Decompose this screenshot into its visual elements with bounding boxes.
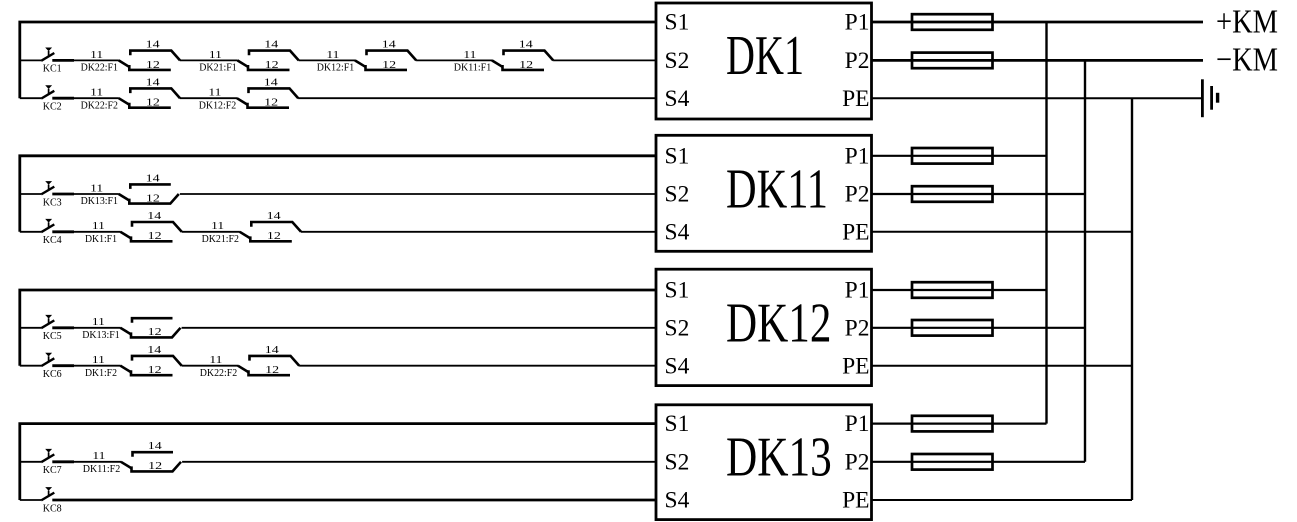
svg-text:S4: S4 bbox=[665, 488, 690, 514]
svg-text:+KM: +KM bbox=[1216, 3, 1278, 40]
svg-text:14: 14 bbox=[147, 345, 162, 356]
svg-text:12: 12 bbox=[148, 327, 162, 338]
svg-text:12: 12 bbox=[264, 98, 278, 109]
svg-text:KC5: KC5 bbox=[43, 331, 62, 342]
svg-text:11: 11 bbox=[92, 317, 105, 328]
svg-text:12: 12 bbox=[146, 98, 160, 109]
svg-text:KC6: KC6 bbox=[43, 369, 62, 380]
svg-text:14: 14 bbox=[267, 211, 282, 222]
svg-text:14: 14 bbox=[147, 211, 162, 222]
svg-text:S4: S4 bbox=[665, 86, 690, 112]
svg-text:P2: P2 bbox=[845, 449, 870, 475]
svg-text:S1: S1 bbox=[665, 10, 690, 36]
svg-text:14: 14 bbox=[519, 40, 534, 51]
svg-text:KC7: KC7 bbox=[43, 465, 62, 476]
svg-text:−KM: −KM bbox=[1216, 42, 1278, 79]
svg-text:12: 12 bbox=[148, 231, 162, 242]
svg-text:KC2: KC2 bbox=[43, 102, 62, 113]
svg-text:14: 14 bbox=[146, 78, 161, 89]
svg-text:12: 12 bbox=[265, 60, 279, 71]
svg-text:12: 12 bbox=[148, 365, 162, 376]
svg-text:S2: S2 bbox=[665, 449, 690, 475]
svg-text:DK11:F2: DK11:F2 bbox=[83, 464, 120, 475]
svg-text:DK13:F1: DK13:F1 bbox=[82, 330, 119, 341]
svg-text:DK12:F1: DK12:F1 bbox=[317, 63, 354, 74]
svg-text:12: 12 bbox=[148, 461, 162, 472]
svg-text:11: 11 bbox=[92, 221, 105, 232]
svg-text:14: 14 bbox=[264, 40, 279, 51]
svg-text:S1: S1 bbox=[665, 278, 690, 304]
svg-text:P1: P1 bbox=[845, 411, 870, 437]
svg-text:DK13: DK13 bbox=[726, 426, 832, 488]
svg-text:KC1: KC1 bbox=[43, 64, 62, 75]
svg-text:12: 12 bbox=[146, 60, 160, 71]
svg-text:14: 14 bbox=[146, 173, 161, 184]
svg-text:12: 12 bbox=[267, 231, 281, 242]
svg-text:11: 11 bbox=[463, 50, 476, 61]
svg-text:DK1: DK1 bbox=[726, 25, 804, 87]
svg-text:11: 11 bbox=[90, 50, 103, 61]
svg-text:DK1:F1: DK1:F1 bbox=[85, 234, 117, 245]
svg-text:14: 14 bbox=[382, 40, 397, 51]
svg-text:P2: P2 bbox=[845, 182, 870, 208]
svg-text:11: 11 bbox=[90, 183, 103, 194]
svg-text:11: 11 bbox=[92, 451, 105, 462]
svg-text:11: 11 bbox=[209, 50, 222, 61]
svg-text:DK22:F2: DK22:F2 bbox=[81, 100, 118, 111]
svg-text:11: 11 bbox=[326, 50, 339, 61]
svg-text:DK22:F2: DK22:F2 bbox=[200, 368, 237, 379]
svg-text:S1: S1 bbox=[665, 411, 690, 437]
svg-text:DK21:F2: DK21:F2 bbox=[202, 234, 239, 245]
svg-text:14: 14 bbox=[148, 441, 163, 452]
svg-text:P2: P2 bbox=[845, 48, 870, 74]
svg-text:S2: S2 bbox=[665, 182, 690, 208]
svg-text:P1: P1 bbox=[845, 143, 870, 169]
svg-text:PE: PE bbox=[842, 219, 869, 245]
svg-text:S1: S1 bbox=[665, 143, 690, 169]
svg-text:11: 11 bbox=[92, 355, 105, 366]
svg-text:DK12:F2: DK12:F2 bbox=[199, 100, 236, 111]
svg-text:12: 12 bbox=[265, 365, 279, 376]
svg-text:P2: P2 bbox=[845, 315, 870, 341]
svg-text:11: 11 bbox=[209, 355, 222, 366]
svg-text:14: 14 bbox=[265, 345, 280, 356]
svg-text:11: 11 bbox=[90, 88, 103, 99]
svg-text:S2: S2 bbox=[665, 315, 690, 341]
svg-text:DK13:F1: DK13:F1 bbox=[81, 196, 118, 207]
svg-text:12: 12 bbox=[519, 60, 533, 71]
svg-text:14: 14 bbox=[264, 78, 279, 89]
svg-text:DK1:F2: DK1:F2 bbox=[85, 368, 117, 379]
svg-text:KC3: KC3 bbox=[43, 197, 62, 208]
svg-text:DK21:F1: DK21:F1 bbox=[199, 63, 236, 74]
svg-text:S4: S4 bbox=[665, 353, 690, 379]
svg-text:P1: P1 bbox=[845, 278, 870, 304]
svg-text:14: 14 bbox=[146, 40, 161, 51]
svg-text:11: 11 bbox=[211, 221, 224, 232]
svg-text:12: 12 bbox=[382, 60, 396, 71]
svg-text:S4: S4 bbox=[665, 219, 690, 245]
svg-text:DK22:F1: DK22:F1 bbox=[81, 63, 118, 74]
svg-text:DK11: DK11 bbox=[726, 159, 828, 221]
svg-text:PE: PE bbox=[842, 488, 869, 514]
svg-text:DK12: DK12 bbox=[726, 292, 831, 354]
svg-text:P1: P1 bbox=[845, 10, 870, 36]
svg-text:DK11:F1: DK11:F1 bbox=[454, 63, 491, 74]
svg-text:11: 11 bbox=[208, 88, 221, 99]
svg-text:PE: PE bbox=[842, 86, 869, 112]
svg-text:12: 12 bbox=[146, 193, 160, 204]
svg-text:S2: S2 bbox=[665, 48, 690, 74]
svg-text:KC8: KC8 bbox=[43, 503, 62, 514]
svg-text:KC4: KC4 bbox=[43, 235, 63, 246]
svg-text:PE: PE bbox=[842, 353, 869, 379]
